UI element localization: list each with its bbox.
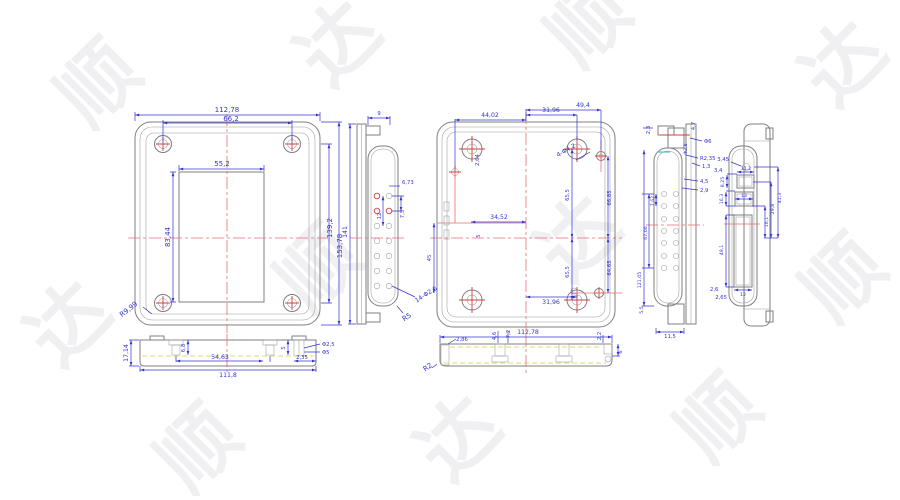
dim-label: 8,25 [720, 177, 726, 187]
dim-label: 34,52 [490, 214, 508, 221]
dim-label: 9 [377, 111, 380, 117]
drawing-canvas: 顺 达 顺 达 达 顺 达 顺 顺 达 顺 [0, 0, 900, 500]
dim-label: 17,14 [123, 344, 130, 362]
dim-label: 67,06 [643, 226, 649, 239]
dim-label: 7,62 [650, 196, 656, 206]
dim-label: 65,5 [565, 266, 571, 278]
screw-boss [459, 287, 485, 313]
dim-label: 2,86 [456, 337, 468, 343]
dim-label: 64,65 [607, 260, 613, 275]
dim-label: 2,9 [700, 188, 708, 194]
dim-label: 16,3 [719, 194, 725, 204]
cutout-slot [737, 175, 754, 188]
dim-label: 5 [281, 346, 287, 349]
dim-label: 139,2 [326, 218, 334, 238]
dim-label: 111,8 [219, 372, 237, 379]
dim-label: 83,44 [164, 226, 172, 247]
dim-label: 2,35 [296, 355, 308, 361]
hole-grid [661, 191, 678, 270]
watermark-glyph: 达 [400, 380, 519, 499]
dim-label: 31,96 [542, 299, 560, 306]
dim-label: 2,2 [597, 332, 603, 340]
dim-label: 66,2 [223, 115, 239, 123]
watermark-glyph: 顺 [140, 390, 259, 500]
back-bottom-view: 2,86 112,78 R2 4,6 7,2 2,2 6 [422, 329, 624, 376]
dim-label: 55,2 [214, 160, 230, 168]
dim-label: 16,1 [764, 217, 770, 227]
dim-label: 7,2 [506, 330, 512, 338]
dim-label: R5 [401, 311, 413, 323]
dim-label: 6,73 [402, 180, 414, 186]
mount-stud [263, 340, 277, 355]
dim-label: 49,1 [719, 245, 725, 255]
watermark-glyph: 达 [520, 180, 639, 299]
dim-label: 121,05 [637, 272, 643, 288]
dim-label: 112,78 [215, 106, 240, 114]
watermark-glyph: 顺 [530, 0, 649, 83]
dim-label: 3,4 [714, 168, 723, 174]
dim-label: 6 [618, 350, 624, 354]
dim-label: 3,45 [717, 157, 729, 163]
dim-label: 41,3 [777, 193, 783, 203]
cad-drawing: 顺 达 顺 达 达 顺 达 顺 顺 达 顺 [0, 0, 900, 500]
dim-label: 4-Φ4,2 [555, 142, 577, 159]
dim-label: 49,4 [576, 102, 590, 109]
display-window [179, 172, 264, 302]
dim-label: 13 [741, 193, 747, 199]
dim-label: 31,96 [542, 107, 560, 114]
dim-label: 141 [342, 226, 349, 238]
dim-label: 7,5 [400, 210, 406, 218]
dim-label: 14-Φ2,6 [414, 285, 439, 304]
dim-label: 11,2 [741, 166, 751, 172]
screw-hole [284, 295, 301, 312]
dim-label: 4,5 [700, 179, 708, 185]
watermark-glyph: 顺 [260, 210, 379, 329]
dim-label: 2,6 [710, 287, 719, 293]
dim-label: R2,35 [700, 156, 715, 162]
dim-label: 54,63 [211, 354, 229, 361]
watermark-glyph: 达 [785, 5, 900, 124]
watermark: 顺 达 顺 达 达 顺 达 顺 顺 达 顺 [10, 0, 900, 500]
dim-label: 112,78 [517, 329, 539, 336]
dim-label: 12 [377, 213, 383, 220]
dim-label: 5,5 [639, 306, 645, 313]
screw-boss [459, 136, 485, 162]
dim-label: 29,8 [770, 204, 776, 214]
watermark-glyph: 顺 [660, 360, 779, 479]
dim-label: 12 [740, 292, 746, 298]
dim-label: 65,5 [565, 189, 571, 201]
dim-label: 1,3 [702, 164, 710, 170]
dim-label: 2,65 [715, 295, 727, 301]
front-bottom-view: 17,14 6,8 5 Φ2,5 Φ5 54,63 111,8 2,35 [123, 334, 335, 379]
watermark-glyph: 顺 [785, 220, 900, 339]
right-side-view: 2,3 4,7 Φ6 Φ2,8 R2,35 1,3 4,5 2,9 3,4 2,… [637, 122, 723, 340]
dim-label: 2,64 [475, 153, 481, 165]
dim-label: 45 [427, 255, 433, 262]
dim-label: 44,02 [481, 112, 499, 119]
dim-label: Φ2,8 [683, 143, 689, 154]
watermark-glyph: 达 [10, 265, 129, 384]
dim-label: 66,85 [607, 190, 613, 205]
dim-label: Φ6 [704, 139, 712, 145]
dim-label: R2 [422, 361, 434, 373]
dim-label: 4,6 [492, 331, 498, 340]
screw-hole [155, 295, 172, 312]
dim-label: 11,5 [664, 334, 676, 340]
dim-label: 4,7 [691, 122, 697, 130]
dim-label: 2,3 [646, 126, 652, 134]
dim-label: Φ5 [322, 350, 330, 356]
dim-label: 5 [476, 234, 482, 237]
watermark-glyph: 达 [280, 0, 399, 103]
end-view: 3,45 11,2 8,25 16,3 13 41,3 29,8 16,1 49… [715, 124, 783, 326]
dim-label: 6,8 [181, 343, 187, 352]
pilot-hole [605, 356, 611, 362]
cutout-slot [734, 215, 752, 287]
dim-label: Φ2,5 [322, 342, 335, 348]
